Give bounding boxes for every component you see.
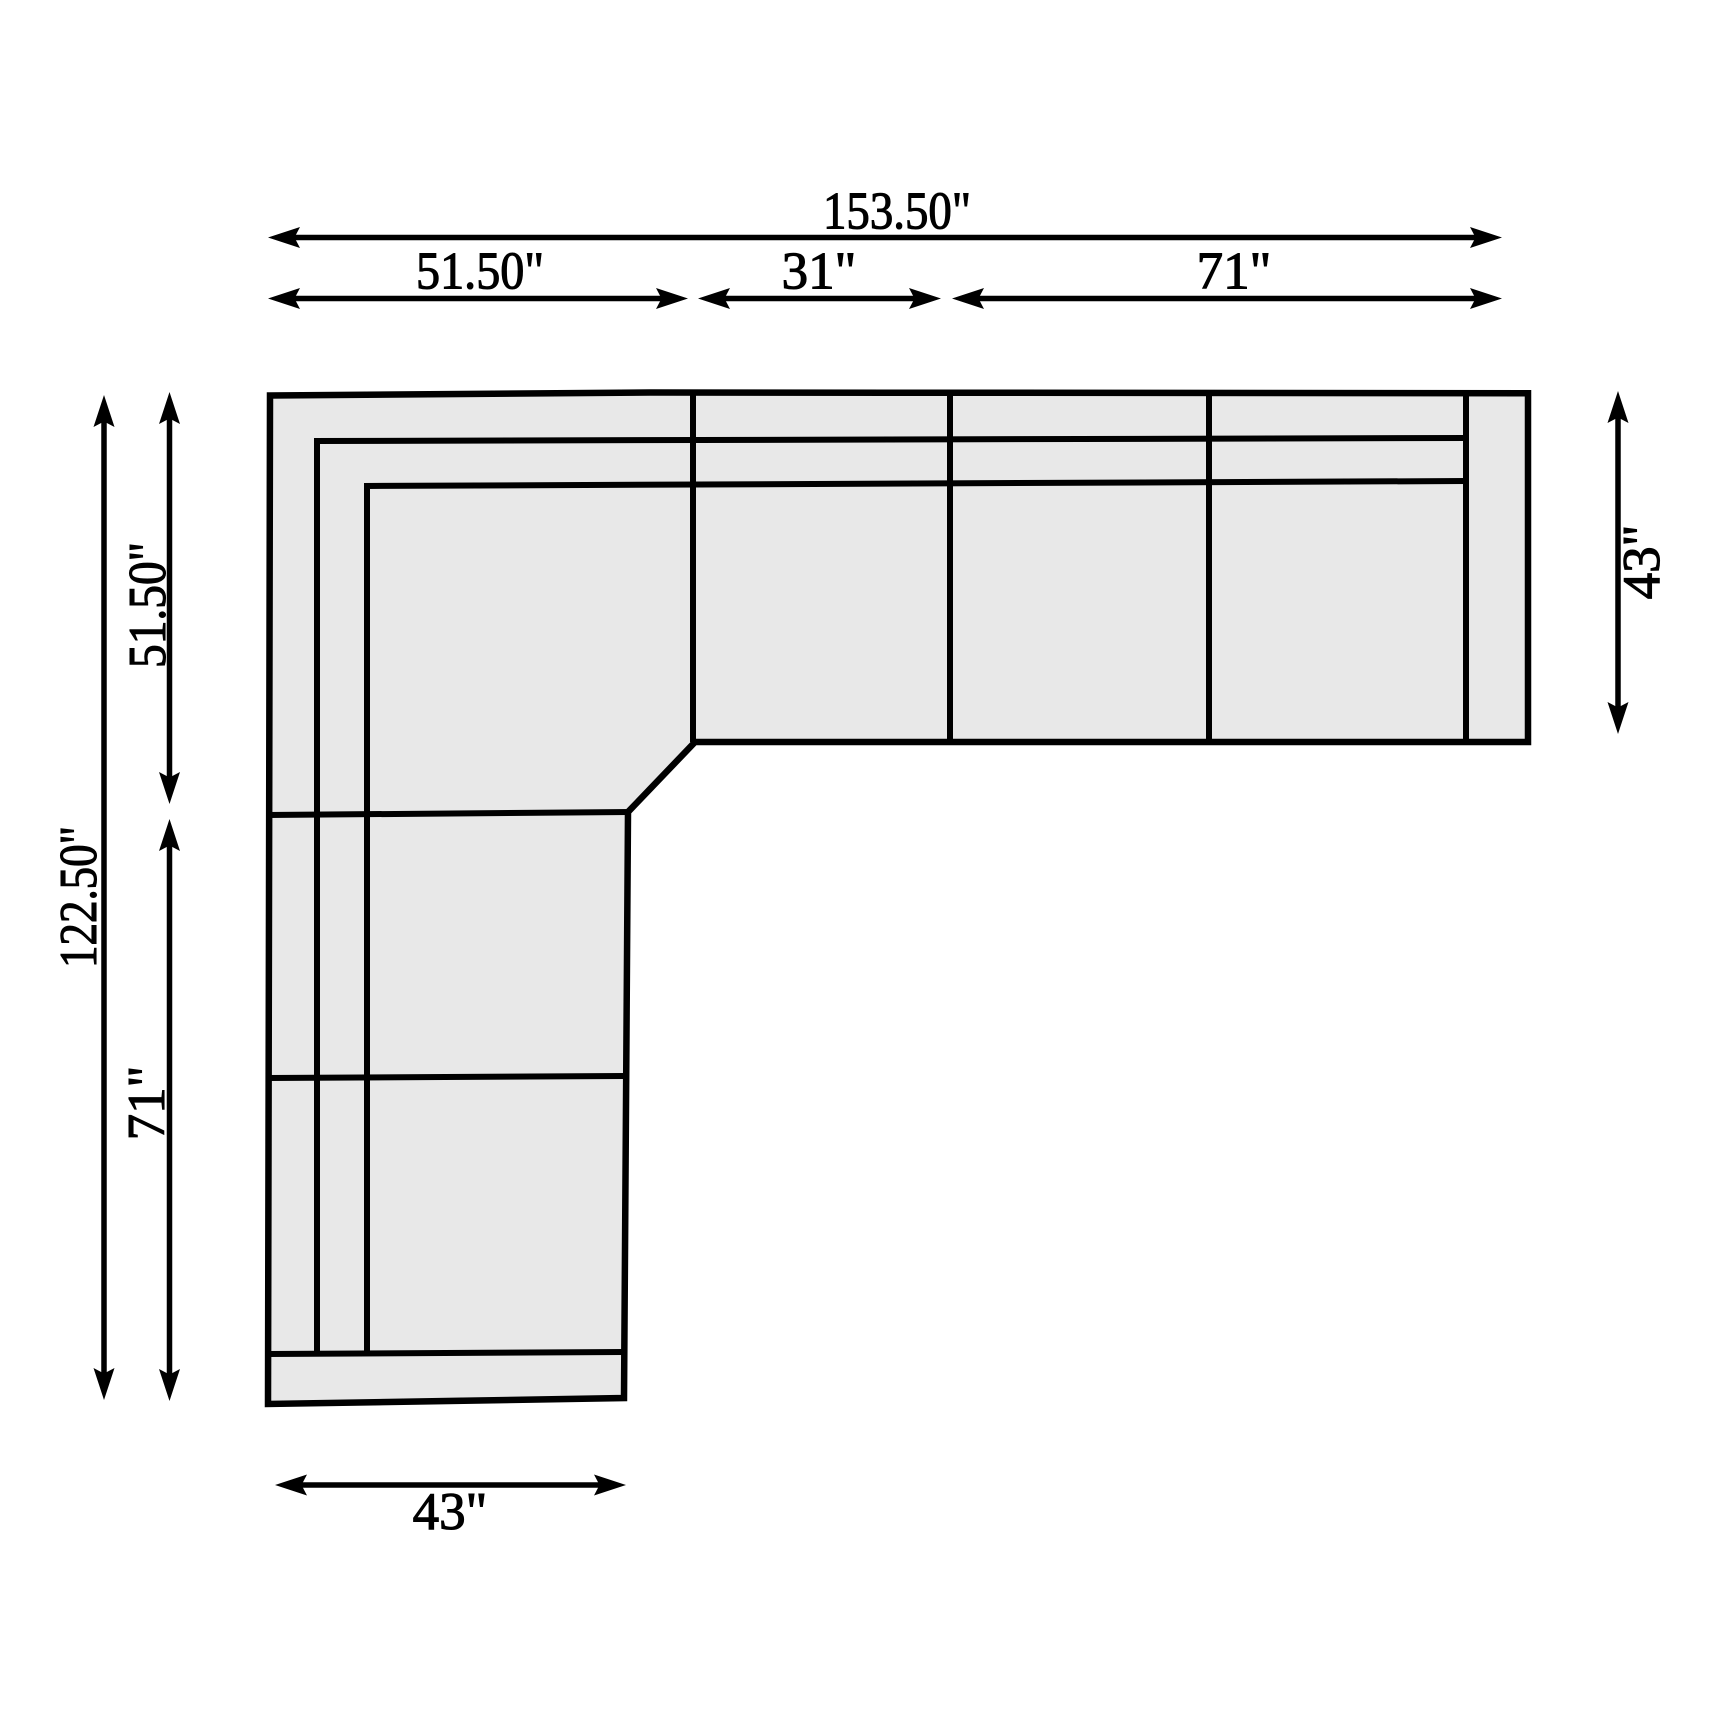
svg-text:51.50": 51.50" bbox=[416, 243, 544, 301]
svg-text:71": 71" bbox=[1197, 243, 1272, 301]
svg-text:43": 43" bbox=[413, 1483, 488, 1541]
svg-text:153.50": 153.50" bbox=[823, 183, 971, 241]
svg-text:122.50": 122.50" bbox=[50, 826, 108, 968]
svg-text:71": 71" bbox=[118, 1066, 176, 1141]
svg-text:43": 43" bbox=[1613, 525, 1671, 600]
svg-text:31": 31" bbox=[782, 243, 857, 301]
svg-text:51.50": 51.50" bbox=[119, 542, 177, 668]
